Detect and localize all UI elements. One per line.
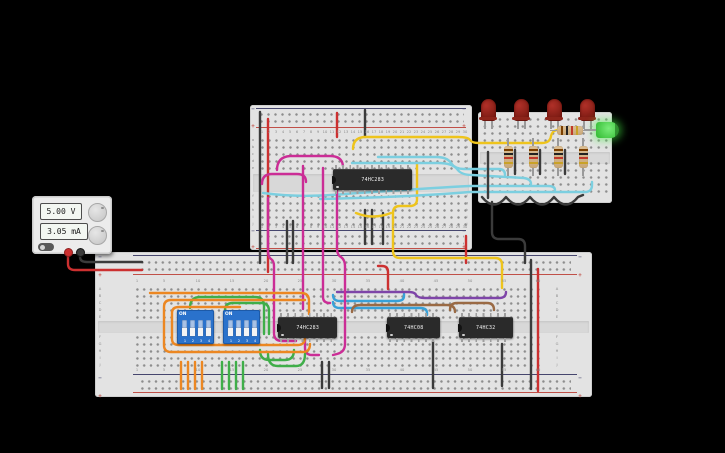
rail-plus-marker: +	[251, 123, 255, 128]
upper-column-number: 23	[414, 129, 419, 133]
led-red-2[interactable]	[514, 99, 529, 121]
upper-row-letter: e	[466, 166, 468, 170]
power-supply[interactable]: 5.00 V 3.05 mA	[32, 196, 112, 254]
lower-column-number: 20	[264, 279, 269, 283]
upper-row-letter: c	[466, 152, 468, 156]
lower-column-number: 30	[332, 279, 337, 283]
lower-top-rail-holes	[139, 259, 571, 273]
power-toggle[interactable]	[38, 243, 54, 251]
upper-row-letter: f	[466, 194, 467, 198]
upper-column-number: 12	[337, 225, 342, 229]
upper-row-letter: j	[252, 222, 253, 226]
lower-column-number: 45	[434, 368, 439, 372]
lower-row-letter: B	[99, 294, 102, 298]
dip-slider-handle	[228, 328, 233, 336]
upper-column-number: 16	[365, 129, 370, 133]
upper-column-number: 10	[323, 129, 328, 133]
lower-top-minus-line	[133, 255, 577, 256]
upper-column-number: 4	[282, 225, 284, 229]
lower-column-number: 5	[163, 279, 165, 283]
ic-top-adder[interactable]: 74HC283	[333, 169, 412, 190]
ic-and-gate[interactable]: 74HC08	[387, 317, 440, 338]
upper-column-number: 19	[386, 225, 391, 229]
lower-column-number: 15	[230, 368, 235, 372]
upper-row-letter: c	[252, 152, 254, 156]
lower-column-number: 55	[502, 368, 507, 372]
rail-plus-marker: +	[578, 272, 582, 277]
dip-slider-handle	[198, 328, 203, 336]
upper-column-number: 6	[296, 225, 298, 229]
dip-slider-3[interactable]	[244, 320, 249, 336]
upper-column-number: 5	[289, 129, 291, 133]
resistor-4[interactable]	[579, 146, 588, 168]
upper-column-number: 4	[282, 129, 284, 133]
upper-column-number: 15	[358, 129, 363, 133]
dip-switch-2[interactable]: ON 1234	[223, 310, 260, 344]
upper-column-number: 28	[449, 129, 454, 133]
rail-minus-marker: −	[251, 228, 255, 233]
rail-plus-marker: +	[462, 123, 466, 128]
voltage-knob[interactable]	[88, 203, 107, 222]
upper-row-letter: f	[252, 194, 253, 198]
upper-row-letter: d	[252, 159, 254, 163]
upper-column-number: 26	[435, 225, 440, 229]
upper-column-number: 13	[344, 225, 349, 229]
led-green-carry[interactable]	[596, 122, 619, 138]
lower-column-number: 40	[400, 279, 405, 283]
dip-pin-number: 4	[253, 339, 255, 343]
rail-minus-marker: −	[462, 106, 466, 111]
upper-column-number: 9	[317, 129, 319, 133]
upper-column-number: 15	[358, 225, 363, 229]
upper-column-number: 1	[261, 225, 263, 229]
current-knob[interactable]	[88, 226, 107, 245]
led-red-1[interactable]	[481, 99, 496, 121]
ic-label: 74HC32	[476, 325, 496, 331]
lower-row-letter: J	[556, 363, 557, 367]
lower-column-number: 50	[468, 279, 473, 283]
upper-top-rail-holes	[258, 111, 464, 125]
lower-column-number: 10	[196, 368, 201, 372]
upper-column-number: 11	[330, 225, 335, 229]
ic-label: 74HC08	[404, 325, 424, 331]
dip-slider-handle	[206, 328, 211, 336]
upper-row-letter: g	[466, 201, 468, 205]
dip-slider-4[interactable]	[206, 320, 211, 336]
upper-column-number: 14	[351, 225, 356, 229]
upper-column-number: 6	[296, 129, 298, 133]
upper-column-number: 12	[337, 129, 342, 133]
pin1-dot	[462, 334, 465, 337]
lower-column-number: 1	[136, 279, 138, 283]
voltage-display: 5.00 V	[40, 203, 82, 220]
ic-label: 74HC283	[296, 325, 319, 331]
pin1-dot	[281, 334, 284, 337]
ic-bottom-adder[interactable]: 74HC283	[278, 317, 337, 338]
lower-column-number: 45	[434, 279, 439, 283]
dip-pin-number: 3	[199, 339, 201, 343]
upper-column-number: 27	[442, 129, 447, 133]
upper-column-number: 13	[344, 129, 349, 133]
led-red-4[interactable]	[580, 99, 595, 121]
lower-column-number: 40	[400, 368, 405, 372]
lower-column-number: 55	[502, 279, 507, 283]
upper-column-number: 8	[310, 129, 312, 133]
dip-slider-3[interactable]	[198, 320, 203, 336]
resistor-2[interactable]	[529, 146, 538, 168]
upper-column-number: 20	[393, 225, 398, 229]
lower-column-number: 35	[366, 368, 371, 372]
upper-column-number: 27	[442, 225, 447, 229]
lower-row-letter: C	[556, 301, 559, 305]
resistor-3[interactable]	[554, 146, 563, 168]
rail-minus-marker: −	[578, 375, 582, 380]
upper-column-number: 29	[456, 225, 461, 229]
rail-minus-marker: −	[251, 106, 255, 111]
dip-on-label: ON	[225, 311, 232, 316]
rail-plus-marker: +	[462, 244, 466, 249]
upper-column-number: 25	[428, 129, 433, 133]
upper-row-letter: d	[466, 159, 468, 163]
dip-pin-number: 1	[229, 339, 231, 343]
lower-row-letter: H	[556, 349, 559, 353]
upper-row-letter: a	[252, 138, 254, 142]
dip-slider-2[interactable]	[236, 320, 241, 336]
upper-row-letter: h	[466, 208, 468, 212]
dip-slider-2[interactable]	[190, 320, 195, 336]
lower-column-number: 10	[196, 279, 201, 283]
rail-minus-marker: −	[462, 228, 466, 233]
upper-column-number: 29	[456, 129, 461, 133]
upper-row-letter: b	[252, 145, 254, 149]
upper-column-number: 22	[407, 129, 412, 133]
lower-column-number: 15	[230, 279, 235, 283]
upper-column-number: 24	[421, 129, 426, 133]
voltage-value: 5.00 V	[47, 207, 76, 216]
upper-row-letter: h	[252, 208, 254, 212]
upper-column-number: 30	[463, 129, 468, 133]
upper-bottom-rail-holes	[258, 233, 464, 247]
upper-column-number: 28	[449, 225, 454, 229]
led-red-3[interactable]	[547, 99, 562, 121]
upper-column-number: 22	[407, 225, 412, 229]
dip-on-label: ON	[179, 311, 186, 316]
lower-bottom-rail-holes	[139, 378, 571, 392]
ic-label: 74HC283	[361, 177, 384, 183]
current-display: 3.05 mA	[40, 223, 88, 240]
upper-column-number: 24	[421, 225, 426, 229]
upper-column-number: 11	[330, 129, 335, 133]
pin1-dot	[336, 186, 339, 189]
circuit-canvas: 5.00 V 3.05 mA 74HC283 74HC283 74HC08 74…	[0, 0, 725, 453]
dip-slider-handle	[190, 328, 195, 336]
lower-row-letter: F	[556, 335, 558, 339]
lower-column-number: 5	[163, 368, 165, 372]
upper-column-number: 19	[386, 129, 391, 133]
upper-column-number: 2	[268, 129, 270, 133]
upper-row-letter: g	[252, 201, 254, 205]
upper-column-number: 26	[435, 129, 440, 133]
upper-column-number: 14	[351, 129, 356, 133]
dip-slider-handle	[236, 328, 241, 336]
lower-column-number: 35	[366, 279, 371, 283]
upper-row-letter: j	[466, 222, 467, 226]
upper-column-number: 18	[379, 129, 384, 133]
upper-column-number: 17	[372, 129, 377, 133]
rail-plus-marker: +	[98, 393, 102, 398]
upper-row-letter: e	[252, 166, 254, 170]
positive-terminal[interactable]	[64, 248, 73, 257]
rail-plus-marker: +	[251, 244, 255, 249]
dip-pin-number: 4	[207, 339, 209, 343]
lower-column-number: 60	[536, 279, 541, 283]
upper-row-letter: i	[466, 215, 467, 219]
upper-column-number: 2	[268, 225, 270, 229]
lower-column-number: 25	[298, 279, 303, 283]
lower-column-number: 50	[468, 368, 473, 372]
resistor-green-led[interactable]	[557, 126, 583, 135]
lower-row-letter: A	[99, 287, 101, 291]
lower-row-letter: D	[556, 308, 559, 312]
upper-column-number: 3	[275, 129, 277, 133]
lower-row-letter: D	[99, 308, 102, 312]
lower-row-letter: J	[99, 363, 100, 367]
upper-column-number: 17	[372, 225, 377, 229]
upper-column-number: 9	[317, 225, 319, 229]
lower-row-letter: G	[556, 342, 559, 346]
current-value: 3.05 mA	[47, 227, 81, 236]
lower-column-number: 60	[536, 368, 541, 372]
dip-slider-handle	[182, 328, 187, 336]
upper-top-plus-line	[256, 127, 466, 128]
lower-row-letter: G	[99, 342, 102, 346]
upper-top-minus-line	[256, 108, 466, 109]
lower-top-plus-line	[133, 274, 577, 275]
lower-row-letter: A	[556, 287, 558, 291]
upper-column-number: 21	[400, 225, 405, 229]
lower-bottom-plus-line	[133, 392, 577, 393]
upper-column-number: 5	[289, 225, 291, 229]
upper-column-number: 10	[323, 225, 328, 229]
pin1-dot	[390, 334, 393, 337]
upper-column-number: 25	[428, 225, 433, 229]
lower-column-number: 1	[136, 368, 138, 372]
lower-row-letter: H	[99, 349, 102, 353]
upper-column-number: 20	[393, 129, 398, 133]
dip-pin-number: 2	[191, 339, 193, 343]
dip-slider-handle	[244, 328, 249, 336]
lower-row-letter: F	[99, 335, 101, 339]
upper-column-number: 16	[365, 225, 370, 229]
dip-pin-number: 2	[237, 339, 239, 343]
lower-row-letter: C	[99, 301, 102, 305]
lower-row-letter: I	[99, 356, 100, 360]
dip-pin-number: 3	[245, 339, 247, 343]
lower-column-number: 20	[264, 368, 269, 372]
upper-column-number: 18	[379, 225, 384, 229]
upper-row-letter: a	[466, 138, 468, 142]
upper-column-number: 21	[400, 129, 405, 133]
dip-slider-4[interactable]	[252, 320, 257, 336]
rail-minus-marker: −	[98, 254, 102, 259]
resistor-1[interactable]	[504, 146, 513, 168]
dip-pin-number: 1	[183, 339, 185, 343]
upper-row-letter: i	[252, 215, 253, 219]
upper-column-number: 3	[275, 225, 277, 229]
upper-row-letter: b	[466, 145, 468, 149]
rail-minus-marker: −	[98, 375, 102, 380]
upper-column-number: 8	[310, 225, 312, 229]
breadboard-lower[interactable]	[95, 252, 592, 397]
rail-plus-marker: +	[98, 272, 102, 277]
ic-notch	[277, 324, 281, 332]
rail-minus-marker: −	[578, 254, 582, 259]
lower-bottom-minus-line	[133, 374, 577, 375]
lower-row-letter: E	[99, 315, 101, 319]
dip-slider-1[interactable]	[228, 320, 233, 336]
rail-plus-marker: +	[578, 393, 582, 398]
upper-column-number: 7	[303, 225, 305, 229]
upper-column-number: 7	[303, 129, 305, 133]
lower-row-letter: E	[556, 315, 558, 319]
lower-row-letter: B	[556, 294, 559, 298]
negative-terminal[interactable]	[76, 248, 85, 257]
lower-column-number: 25	[298, 368, 303, 372]
ic-or-gate[interactable]: 74HC32	[459, 317, 513, 338]
lower-row-letter: I	[556, 356, 557, 360]
ic-notch	[386, 324, 390, 332]
upper-column-number: 1	[261, 129, 263, 133]
dip-switch-1[interactable]: ON 1234	[177, 310, 214, 344]
ic-notch	[458, 324, 462, 332]
dip-slider-1[interactable]	[182, 320, 187, 336]
ic-notch	[332, 176, 336, 184]
lower-column-number: 30	[332, 368, 337, 372]
dip-slider-handle	[252, 328, 257, 336]
upper-column-number: 23	[414, 225, 419, 229]
